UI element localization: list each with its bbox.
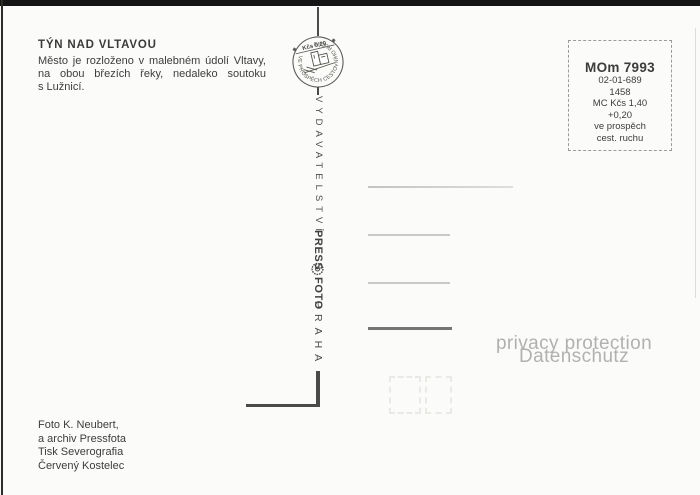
pressfoto-logo-icon: [311, 262, 324, 276]
credits-block: Foto K. Neubert, a archiv Pressfota Tisk…: [38, 419, 126, 473]
scan-border-right: [695, 28, 696, 298]
stamp-line: 02-01-689: [569, 75, 671, 87]
tourism-stamp-emblem: Kčs 0,20 VE PROSPĚCH CESTOVNÍHO RUCHU: [287, 31, 349, 91]
publisher-vertical-text: VYDAVATELSTVÍ: [309, 96, 327, 236]
stamp-code: MOm 7993: [569, 60, 671, 75]
description-line: na obou březích řeky, nedaleko soutoku: [38, 68, 266, 81]
credits-line: Foto K. Neubert,: [38, 419, 126, 433]
divider-line-short: [317, 87, 319, 95]
privacy-watermark: privacy protection Datenschutz: [468, 336, 680, 364]
divider-line-bottom-thick: [316, 371, 320, 407]
scan-border-top: [0, 0, 700, 6]
address-line-4: [368, 327, 452, 330]
faint-dotted-box-right: [425, 376, 452, 414]
description-line: s Lužnicí.: [38, 81, 266, 94]
publisher-city-text: PRAHA: [309, 301, 327, 367]
page-title: TÝN NAD VLTAVOU: [38, 39, 278, 51]
divider-line-horizontal: [246, 404, 319, 407]
faint-dotted-box-left: [389, 376, 421, 414]
credits-line: a archiv Pressfota: [38, 433, 126, 447]
postcard-back: TÝN NAD VLTAVOU Město je rozloženo v mal…: [0, 0, 700, 495]
credits-line: Červený Kostelec: [38, 460, 126, 474]
stamp-line: +0,20: [569, 110, 671, 122]
stamp-line: 1458: [569, 87, 671, 99]
description-block: Město je rozloženo v malebném údolí Vlta…: [38, 55, 266, 94]
stamp-line: ve prospěch: [569, 121, 671, 133]
emblem-castle-icon: [300, 48, 335, 74]
address-line-1: [368, 186, 513, 188]
credits-line: Tisk Severografia: [38, 446, 126, 460]
stamp-line: MC Kčs 1,40: [569, 98, 671, 110]
address-line-3: [368, 282, 450, 284]
stamp-price-box: MOm 7993 02-01-689 1458 MC Kčs 1,40 +0,2…: [568, 40, 672, 151]
scan-border-left: [1, 0, 3, 495]
address-line-2: [368, 234, 450, 236]
stamp-line: cest. ruchu: [569, 133, 671, 145]
description-line: Město je rozloženo v malebném údolí Vlta…: [38, 55, 266, 68]
